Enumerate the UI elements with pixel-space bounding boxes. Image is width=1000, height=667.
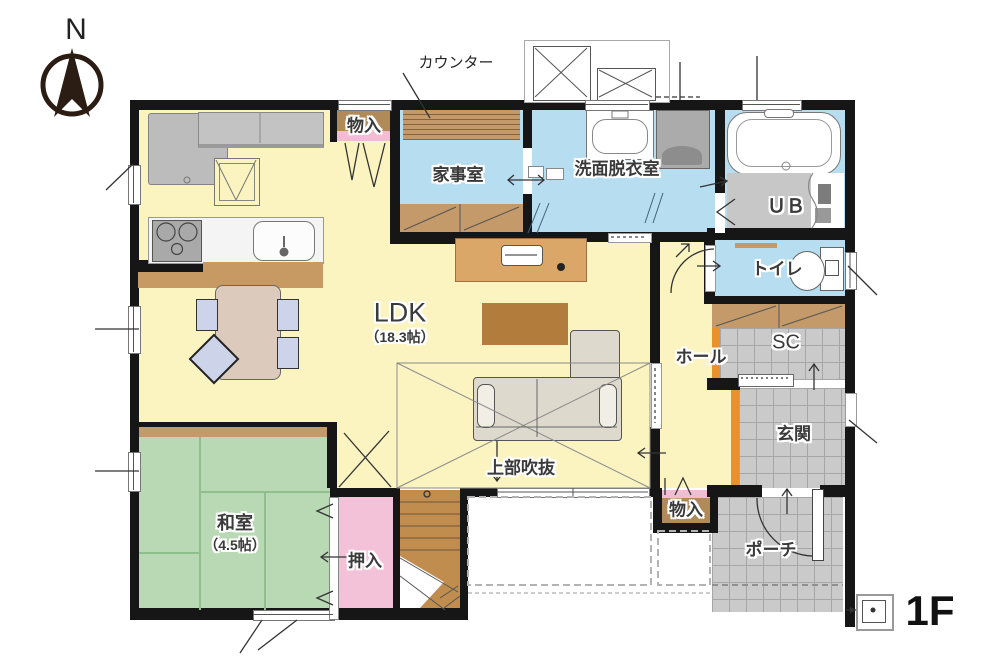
outdoor-unit <box>597 68 656 101</box>
utility-shelf <box>400 204 523 232</box>
door-opening <box>845 393 857 427</box>
sliding-door <box>329 497 339 620</box>
room-hall <box>660 242 704 296</box>
compass-icon <box>43 48 101 117</box>
tatami-trim <box>138 427 330 437</box>
meter-box-inner <box>862 600 886 623</box>
counter-top <box>403 110 520 140</box>
shower-fixture <box>818 184 831 204</box>
washroom-label: 洗面脱衣室 <box>575 155 660 180</box>
sofa-armrest <box>477 384 495 428</box>
wall <box>710 488 718 533</box>
wall <box>845 100 855 627</box>
window <box>497 488 650 498</box>
storage-top-label: 物入 <box>347 112 381 137</box>
sofa-armrest <box>599 384 617 428</box>
dining-chair <box>277 337 299 369</box>
shoe-closet-label: SC <box>772 332 800 355</box>
toilet-shelf <box>735 243 777 248</box>
japanese-room-label: 和室 <box>217 509 253 535</box>
ldk-label: LDK <box>374 298 427 329</box>
room-ldk <box>337 422 393 488</box>
wall <box>650 427 660 488</box>
desk-chair <box>501 245 543 266</box>
window <box>128 306 141 354</box>
room-hall <box>712 390 731 488</box>
shoe-cabinet <box>738 374 794 387</box>
storage-bottom-label: 物入 <box>669 496 703 521</box>
door-opening <box>705 245 716 292</box>
outdoor-unit <box>533 46 591 101</box>
toilet-label: トイレ <box>752 255 803 280</box>
window <box>128 452 141 492</box>
sliding-door <box>651 363 662 429</box>
washbasin-bowl <box>592 119 648 154</box>
wall <box>460 488 468 610</box>
shoe-closet-shelf <box>712 304 845 328</box>
stove <box>152 220 202 262</box>
stool <box>528 166 544 178</box>
counter-label: カウンター <box>418 52 493 73</box>
wall <box>393 490 400 610</box>
dining-chair <box>196 299 218 331</box>
void-label: 上部吹抜 <box>487 454 555 479</box>
compass-label: N <box>65 13 87 47</box>
wall <box>653 523 718 533</box>
step-edge <box>731 388 739 488</box>
ldk-size-label: （18.3帖） <box>365 327 434 347</box>
stairs <box>400 490 460 608</box>
shower-fixture <box>815 208 831 223</box>
wall <box>330 488 400 497</box>
wall <box>650 232 660 363</box>
porch-label: ポーチ <box>746 536 797 561</box>
door-opening <box>715 193 725 233</box>
window <box>128 165 141 205</box>
wall <box>327 422 337 488</box>
closet-label: 押入 <box>348 547 382 572</box>
dining-chair <box>277 299 299 331</box>
window <box>845 252 857 290</box>
washing-machine-lid <box>662 146 702 165</box>
window <box>253 610 335 621</box>
kitchen-cabinet <box>198 112 324 148</box>
wall <box>707 228 845 240</box>
tall-cupboard-inner <box>219 163 255 201</box>
floor-plan: N カウンター 物入 家事室 洗面脱衣室 ＵＢ トイレ ホール SC 玄関 物入… <box>0 0 1000 667</box>
rug <box>482 303 568 345</box>
bathtub-handle <box>764 109 794 118</box>
hall-label: ホール <box>676 343 727 368</box>
window <box>338 100 392 111</box>
toilet-button <box>825 260 839 276</box>
room-hall <box>660 296 712 488</box>
wall <box>707 378 740 390</box>
wall <box>138 422 337 427</box>
bathtub-inner <box>736 119 832 167</box>
unit-bath-label: ＵＢ <box>767 192 805 219</box>
wall <box>704 296 845 304</box>
stool <box>546 168 564 180</box>
floor-label: 1F <box>905 587 954 635</box>
kitchen-sink <box>253 221 315 261</box>
wall <box>330 108 337 142</box>
wall <box>390 108 400 232</box>
utility-room-label: 家事室 <box>433 161 484 186</box>
entrance-door-leaf <box>812 489 824 561</box>
entrance-label: 玄関 <box>777 420 811 445</box>
japanese-room-size-label: （4.5帖） <box>204 535 265 555</box>
sliding-door <box>608 233 652 243</box>
